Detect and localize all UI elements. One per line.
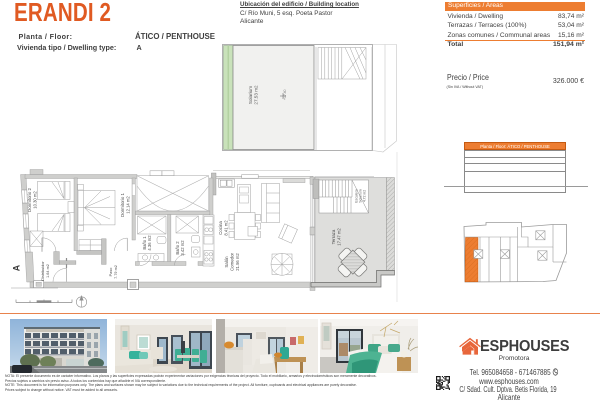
svg-text:Terraza: Terraza bbox=[331, 229, 336, 244]
svg-text:7.79 m2: 7.79 m2 bbox=[114, 265, 118, 279]
svg-text:8.41 m2: 8.41 m2 bbox=[223, 220, 228, 236]
svg-text:3.42 m2: 3.42 m2 bbox=[180, 240, 185, 256]
svg-text:1.64 m2: 1.64 m2 bbox=[46, 264, 50, 278]
svg-text:27.53 m2: 27.53 m2 bbox=[254, 85, 259, 105]
svg-text:Distribuidor: Distribuidor bbox=[41, 261, 45, 281]
svg-text:+17.40: +17.40 bbox=[283, 89, 287, 100]
svg-text:Solarium: Solarium bbox=[248, 86, 253, 104]
svg-text:10.30 m2: 10.30 m2 bbox=[32, 191, 37, 209]
svg-text:17.47 m2: 17.47 m2 bbox=[336, 228, 341, 246]
svg-text:Dormitorio 1: Dormitorio 1 bbox=[120, 192, 125, 216]
svg-text:12.14 m2: 12.14 m2 bbox=[125, 196, 130, 214]
svg-text:Comedor: Comedor bbox=[229, 252, 234, 271]
svg-text:21.56 m2: 21.56 m2 bbox=[235, 253, 240, 271]
svg-text:4.72 m2: 4.72 m2 bbox=[363, 190, 367, 202]
svg-text:Paso: Paso bbox=[109, 268, 113, 277]
svg-text:Cocina: Cocina bbox=[218, 221, 223, 235]
svg-text:Dormitorio 2: Dormitorio 2 bbox=[27, 187, 32, 211]
svg-text:Salón: Salón bbox=[224, 256, 229, 268]
svg-text:4.36 m2: 4.36 m2 bbox=[147, 235, 152, 251]
svg-text:A: A bbox=[12, 264, 22, 271]
